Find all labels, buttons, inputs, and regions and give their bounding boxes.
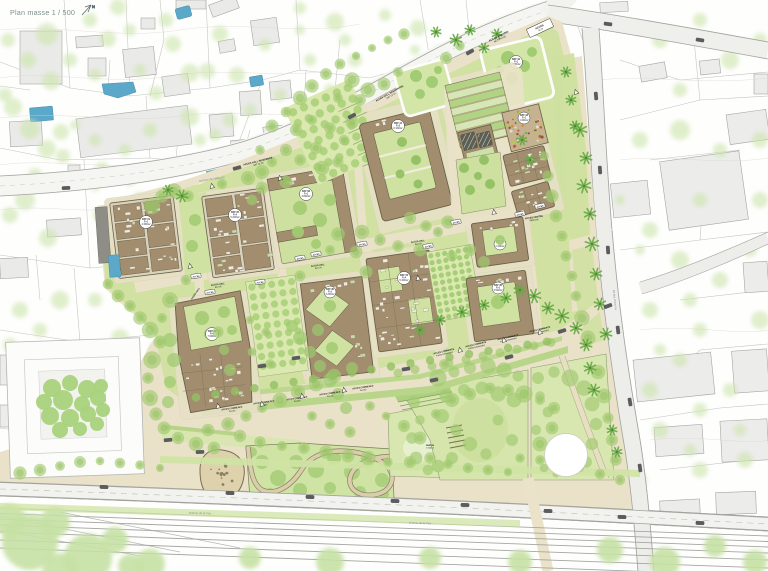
svg-text:N: N — [92, 4, 95, 9]
svg-text:6 100m2: 6 100m2 — [394, 128, 404, 130]
svg-text:avenue de la Paix: avenue de la Paix — [409, 521, 432, 526]
svg-text:5 200m2: 5 200m2 — [231, 217, 241, 219]
svg-text:5 400m2: 5 400m2 — [400, 280, 410, 282]
svg-text:1 900m2: 1 900m2 — [520, 120, 530, 122]
svg-text:4 300m2: 4 300m2 — [142, 224, 152, 226]
svg-text:2 400m2: 2 400m2 — [496, 246, 506, 248]
svg-text:3 500m2: 3 500m2 — [494, 290, 504, 292]
svg-text:2 500m2: 2 500m2 — [426, 448, 435, 450]
svg-text:PARVIS: PARVIS — [426, 444, 434, 447]
svg-text:Plan masse 1 / 500: Plan masse 1 / 500 — [10, 8, 75, 17]
svg-text:3 200m2: 3 200m2 — [326, 294, 336, 296]
svg-text:avenue de la Paix: avenue de la Paix — [189, 511, 212, 516]
svg-text:3 800m2: 3 800m2 — [302, 196, 312, 198]
